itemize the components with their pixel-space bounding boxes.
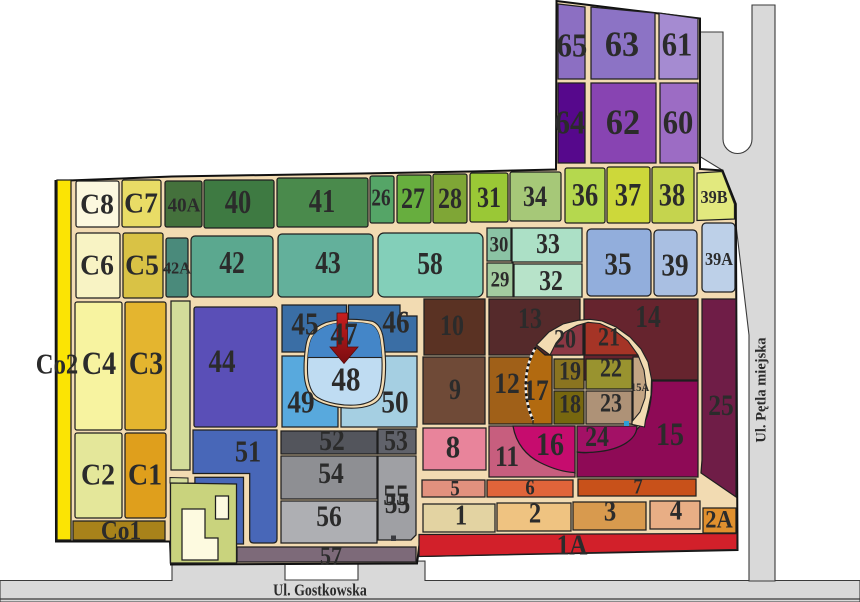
svg-text:47: 47 xyxy=(330,318,357,352)
svg-text:7: 7 xyxy=(633,475,642,499)
svg-text:1: 1 xyxy=(455,499,467,531)
svg-text:56: 56 xyxy=(316,500,342,533)
svg-text:22: 22 xyxy=(600,355,622,383)
svg-text:C8: C8 xyxy=(80,189,114,221)
svg-text:C7: C7 xyxy=(124,188,158,220)
svg-text:49: 49 xyxy=(287,386,314,420)
svg-text:23: 23 xyxy=(600,390,622,418)
svg-text:Co1: Co1 xyxy=(101,517,141,545)
svg-text:33: 33 xyxy=(536,228,560,259)
svg-text:43: 43 xyxy=(315,245,341,280)
svg-text:10: 10 xyxy=(440,308,464,341)
svg-text:41: 41 xyxy=(309,182,336,220)
svg-text:53: 53 xyxy=(384,425,408,456)
svg-text:16: 16 xyxy=(536,426,564,463)
svg-text:51: 51 xyxy=(235,435,261,469)
svg-text:C5: C5 xyxy=(125,250,159,282)
svg-text:C2: C2 xyxy=(81,458,115,492)
svg-text:48: 48 xyxy=(332,360,361,398)
svg-text:15A: 15A xyxy=(631,382,650,395)
svg-text:29: 29 xyxy=(491,268,510,292)
svg-text:11: 11 xyxy=(495,440,519,473)
svg-text:1A: 1A xyxy=(557,529,589,561)
svg-text:5: 5 xyxy=(450,477,459,501)
svg-text:42: 42 xyxy=(219,245,245,280)
svg-text:31: 31 xyxy=(477,180,501,213)
svg-text:Ul. Pętla miejska: Ul. Pętla miejska xyxy=(754,337,770,443)
svg-text:35: 35 xyxy=(604,248,631,282)
svg-text:39B: 39B xyxy=(701,187,728,207)
svg-text:2A: 2A xyxy=(705,506,732,533)
svg-text:C6: C6 xyxy=(80,250,114,282)
svg-text:44: 44 xyxy=(208,342,235,379)
svg-text:Ul. Gostkowska: Ul. Gostkowska xyxy=(273,581,367,600)
svg-text:39: 39 xyxy=(661,249,688,283)
svg-text:18: 18 xyxy=(559,391,581,419)
svg-text:C3: C3 xyxy=(129,345,163,382)
svg-text:54: 54 xyxy=(318,457,344,490)
svg-text:62: 62 xyxy=(606,102,640,142)
svg-text:60: 60 xyxy=(663,103,694,141)
svg-text:3: 3 xyxy=(604,495,616,527)
svg-text:40A: 40A xyxy=(168,195,201,217)
svg-text:63: 63 xyxy=(605,24,639,64)
svg-text:39A: 39A xyxy=(705,249,733,269)
svg-text:26: 26 xyxy=(371,185,390,212)
svg-text:37: 37 xyxy=(615,177,641,213)
svg-text:65: 65 xyxy=(557,26,588,64)
svg-text:42A: 42A xyxy=(163,258,191,277)
svg-text:64: 64 xyxy=(555,103,586,141)
svg-text:25: 25 xyxy=(708,389,733,422)
svg-text:Co2: Co2 xyxy=(36,348,78,380)
svg-text:20: 20 xyxy=(554,326,576,354)
svg-text:36: 36 xyxy=(572,177,598,213)
svg-text:15: 15 xyxy=(656,416,684,453)
svg-text:8: 8 xyxy=(446,429,460,465)
svg-text:4: 4 xyxy=(670,494,682,526)
svg-text:9: 9 xyxy=(449,372,461,405)
svg-text:50: 50 xyxy=(381,386,408,420)
svg-text:27: 27 xyxy=(401,181,425,214)
svg-text:12: 12 xyxy=(494,367,519,400)
svg-text:40: 40 xyxy=(225,183,252,221)
svg-text:30: 30 xyxy=(490,233,509,257)
svg-text:17: 17 xyxy=(523,374,549,407)
svg-text:34: 34 xyxy=(523,179,547,212)
svg-text:58: 58 xyxy=(417,246,443,281)
svg-text:14: 14 xyxy=(635,299,661,334)
svg-text:32: 32 xyxy=(539,265,563,296)
svg-text:19: 19 xyxy=(559,358,581,386)
svg-text:2: 2 xyxy=(529,497,541,529)
svg-text:C4: C4 xyxy=(82,345,116,382)
svg-text:13: 13 xyxy=(518,301,542,334)
svg-text:45: 45 xyxy=(291,308,318,342)
svg-text:61: 61 xyxy=(662,25,693,63)
svg-text:28: 28 xyxy=(438,181,462,214)
svg-text:24: 24 xyxy=(585,421,609,452)
svg-text:52: 52 xyxy=(319,424,344,457)
svg-text:57: 57 xyxy=(320,543,342,571)
svg-text:38: 38 xyxy=(659,177,685,213)
svg-text:21: 21 xyxy=(598,324,620,352)
svg-text:C1: C1 xyxy=(128,458,162,492)
svg-text:55: 55 xyxy=(385,487,410,520)
svg-text:46: 46 xyxy=(382,306,409,340)
